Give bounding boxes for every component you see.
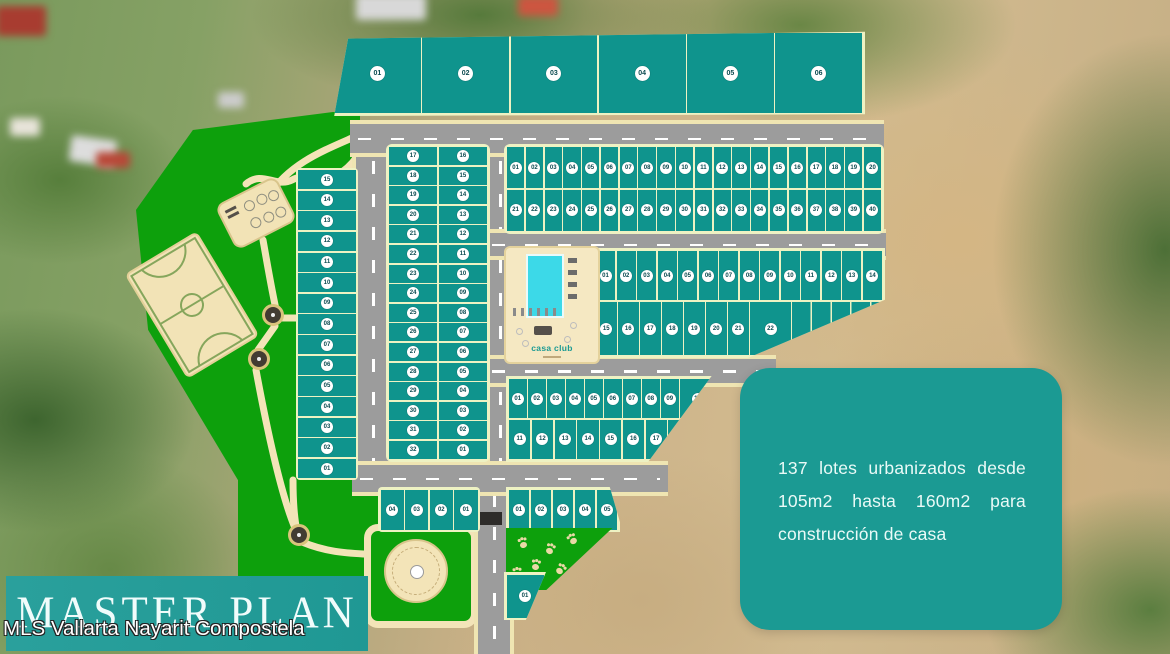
lot-number-badge: 10 <box>784 270 796 282</box>
lot-cell-03: 03 <box>553 490 574 530</box>
lot-number-badge: 10 <box>321 277 333 289</box>
lot-cell-13: 13 <box>439 206 487 224</box>
watermark-text: MLS Vallarta Nayarit Compostela <box>3 617 305 641</box>
paw-print-icon <box>545 547 554 555</box>
lot-number-badge: 02 <box>435 504 447 516</box>
lot-number-badge: 06 <box>321 359 333 371</box>
lot-cell-23: 23 <box>389 265 437 283</box>
lot-number-badge: 01 <box>513 504 525 516</box>
lot-cell-02: 02 <box>531 490 552 530</box>
cabana-icon <box>568 258 577 263</box>
lot-number-badge: 08 <box>457 307 469 319</box>
lot-cell-02: 02 <box>617 251 636 300</box>
lot-cell-04: 04 <box>381 490 404 530</box>
lot-cell-20: 20 <box>706 302 727 355</box>
lot-cell-20: 20 <box>389 206 437 224</box>
lot-cell-31: 31 <box>389 421 437 439</box>
lot-number-badge: 05 <box>588 393 600 405</box>
lot-cell-12: 12 <box>714 147 731 188</box>
lot-number-badge: 20 <box>866 162 878 174</box>
table-icon <box>248 215 263 230</box>
lot-number-badge: 11 <box>321 256 333 268</box>
lot-cell-08: 08 <box>298 314 356 333</box>
lot-number-badge: 03 <box>546 66 561 81</box>
lot-number-badge: 02 <box>528 162 540 174</box>
lot-cell-04: 04 <box>563 147 580 188</box>
lot-number-badge: 02 <box>321 442 333 454</box>
info-box-text: 137 lotes urbanizados desde 105m2 hasta … <box>778 452 1026 551</box>
lot-cell-18: 18 <box>826 147 843 188</box>
lot-cell-01: 01 <box>509 490 530 530</box>
lot-cell-01: 01 <box>439 441 487 459</box>
lot-cell-08: 08 <box>638 147 655 188</box>
club-row-bottom: 1516171819202122 <box>596 302 791 355</box>
lot-cell-13: 13 <box>298 211 356 230</box>
lot-number-badge: 04 <box>661 270 673 282</box>
lot-cell-06: 06 <box>604 379 622 418</box>
lot-cell-17: 17 <box>640 302 661 355</box>
lot-number-badge: 14 <box>321 194 333 206</box>
lot-cell-17: 17 <box>808 147 825 188</box>
table-icon <box>266 188 281 203</box>
casa-club-subtext <box>543 356 561 358</box>
lot-number-badge: 13 <box>321 215 333 227</box>
block-bottom-left: 04030201 <box>378 487 480 532</box>
block-north: 0102030405060708091011121314151617181920… <box>504 144 884 234</box>
lot-cell-01: 01 <box>454 490 477 530</box>
loungers-icon <box>513 308 559 316</box>
lot-number-badge: 18 <box>829 162 841 174</box>
lot-cell-16: 16 <box>618 302 639 355</box>
lot-cell-08: 08 <box>740 251 759 300</box>
center-right-column: 16151413121110090807060504030201 <box>439 147 487 459</box>
paw-print-icon <box>555 567 564 576</box>
lot-cell-16: 16 <box>623 420 644 459</box>
lot-cell-14: 14 <box>751 147 768 188</box>
lot-cell-19: 19 <box>845 147 862 188</box>
lot-cell-16: 16 <box>439 147 487 165</box>
lot-cell-14: 14 <box>577 420 598 459</box>
lot-number-badge: 24 <box>566 204 578 216</box>
lot-number-badge: 14 <box>582 433 594 445</box>
lot-cell-17: 17 <box>389 147 437 165</box>
lot-number-badge: 37 <box>810 204 822 216</box>
lot-number-badge: 14 <box>866 270 878 282</box>
lot-cell-02: 02 <box>422 33 509 113</box>
lot-cell-04: 04 <box>566 379 584 418</box>
palapa-icon <box>262 304 284 326</box>
lot-cell-02: 02 <box>526 147 543 188</box>
lot-number-badge: 09 <box>660 162 672 174</box>
lot-cell-02: 02 <box>430 490 453 530</box>
lot-number-badge: 07 <box>622 162 634 174</box>
bench-icon <box>227 211 239 219</box>
lot-cell-06: 06 <box>439 343 487 361</box>
lot-number-badge: 22 <box>765 323 777 335</box>
lot-cell-18: 18 <box>389 167 437 185</box>
lot-number-badge: 30 <box>679 204 691 216</box>
lot-number-badge: 16 <box>622 323 634 335</box>
lot-cell-21: 21 <box>389 225 437 243</box>
lot-number-badge: 36 <box>791 204 803 216</box>
lot-cell-24: 24 <box>563 190 580 231</box>
lot-cell-12: 12 <box>532 420 553 459</box>
lot-cell-40: 40 <box>864 190 881 231</box>
lot-cell-01: 01 <box>334 33 421 113</box>
block-bottom-right: 0102030405 <box>506 487 620 532</box>
lot-cell-30: 30 <box>389 402 437 420</box>
lot-number-badge: 29 <box>407 385 419 397</box>
lot-number-badge: 15 <box>773 162 785 174</box>
lot-number-badge: 04 <box>569 393 581 405</box>
fountain-icon <box>410 565 424 579</box>
lot-number-badge: 15 <box>600 323 612 335</box>
lot-cell-03: 03 <box>547 379 565 418</box>
lot-number-badge: 25 <box>585 204 597 216</box>
block-center: 17181920212223242526272829303132 1615141… <box>386 144 490 462</box>
lot-number-badge: 09 <box>457 287 469 299</box>
lot-number-badge: 01 <box>600 270 612 282</box>
building-roof-blur <box>356 0 426 20</box>
lot-number-badge: 23 <box>407 268 419 280</box>
table-icon <box>564 336 571 343</box>
lot-number-badge: 14 <box>754 162 766 174</box>
house-roof-blur <box>0 6 46 36</box>
lot-cell-04: 04 <box>599 33 686 113</box>
lot-number-badge: 03 <box>641 270 653 282</box>
lot-number-badge: 02 <box>457 424 469 436</box>
lot-cell-23: 23 <box>545 190 562 231</box>
lot-cell-01: 01 <box>507 147 524 188</box>
lot-number-badge: 17 <box>650 433 662 445</box>
lot-number-badge: 07 <box>626 393 638 405</box>
lot-number-badge: 12 <box>536 433 548 445</box>
lot-number-badge: 16 <box>457 150 469 162</box>
lot-number-badge: 12 <box>457 228 469 240</box>
lot-number-badge: 09 <box>321 297 333 309</box>
lot-cell-04: 04 <box>575 490 596 530</box>
lot-number-badge: 01 <box>457 444 469 456</box>
lot-cell-32: 32 <box>389 441 437 459</box>
lot-cell-05: 05 <box>582 147 599 188</box>
lot-cell-27: 27 <box>620 190 637 231</box>
lot-number-badge: 04 <box>566 162 578 174</box>
south-row-top: 01020304050607080910 <box>509 379 715 418</box>
lot-cell-26: 26 <box>601 190 618 231</box>
lot-cell-36: 36 <box>789 190 806 231</box>
lot-number-badge: 07 <box>723 270 735 282</box>
lot-cell-29: 29 <box>657 190 674 231</box>
block-west-column: 151413121110090807060504030201 <box>296 168 358 480</box>
lot-cell-03: 03 <box>298 418 356 437</box>
lot-number-badge: 22 <box>528 204 540 216</box>
lot-cell-09: 09 <box>298 294 356 313</box>
table-icon <box>570 322 577 329</box>
lot-cell-03: 03 <box>637 251 656 300</box>
lot-number-badge: 29 <box>660 204 672 216</box>
lot-number-badge: 40 <box>866 204 878 216</box>
lot-cell-21: 21 <box>507 190 524 231</box>
lot-number-badge: 02 <box>620 270 632 282</box>
center-left-column: 17181920212223242526272829303132 <box>389 147 437 459</box>
lot-cell-07: 07 <box>439 323 487 341</box>
roundabout-plaza <box>384 539 448 603</box>
lot-cell-14: 14 <box>439 186 487 204</box>
lot-number-badge: 01 <box>321 463 333 475</box>
lot-cell-04: 04 <box>658 251 677 300</box>
paw-print-icon <box>519 541 527 549</box>
lot-cell-37: 37 <box>808 190 825 231</box>
lot-cell-38: 38 <box>826 190 843 231</box>
lot-number-badge: 05 <box>723 66 738 81</box>
lot-cell-11: 11 <box>801 251 820 300</box>
palapa-icon <box>288 524 310 546</box>
lot-number-badge: 28 <box>407 366 419 378</box>
lot-cell-27: 27 <box>389 343 437 361</box>
lot-number-badge: 32 <box>407 444 419 456</box>
lot-cell-25: 25 <box>582 190 599 231</box>
lot-number-badge: 26 <box>407 326 419 338</box>
lot-cell-26: 26 <box>389 323 437 341</box>
lot-cell-13: 13 <box>555 420 576 459</box>
lot-cell-15: 15 <box>600 420 621 459</box>
lot-number-badge: 35 <box>773 204 785 216</box>
lot-number-badge: 12 <box>321 235 333 247</box>
lot-cell-25: 25 <box>389 304 437 322</box>
lot-cell-30: 30 <box>676 190 693 231</box>
lot-number-badge: 13 <box>457 209 469 221</box>
gym-icon <box>534 326 552 335</box>
lot-number-badge: 08 <box>743 270 755 282</box>
lot-cell-03: 03 <box>545 147 562 188</box>
paw-print-icon <box>569 537 578 546</box>
lot-cell-11: 11 <box>439 245 487 263</box>
lot-number-badge: 16 <box>627 433 639 445</box>
lot-number-badge: 03 <box>411 504 423 516</box>
club-row-top: 0102030405060708091011121314 <box>596 251 882 300</box>
lot-cell-33: 33 <box>732 190 749 231</box>
lot-cell-35: 35 <box>770 190 787 231</box>
lot-number-badge: 19 <box>688 323 700 335</box>
lot-number-badge: 11 <box>514 433 526 445</box>
lot-number-badge: 07 <box>321 339 333 351</box>
lot-cell-39: 39 <box>845 190 862 231</box>
lot-cell-28: 28 <box>389 363 437 381</box>
lot-number-badge: 04 <box>635 66 650 81</box>
casa-club-label: casa club <box>506 343 598 353</box>
lot-number-badge: 06 <box>811 66 826 81</box>
lot-cell-15: 15 <box>770 147 787 188</box>
lot-cell-24: 24 <box>389 284 437 302</box>
lot-cell-05: 05 <box>585 379 603 418</box>
lot-cell-06: 06 <box>601 147 618 188</box>
lot-number-badge: 04 <box>321 401 333 413</box>
lot-cell-22: 22 <box>389 245 437 263</box>
lot-number-badge: 04 <box>386 504 398 516</box>
lot-number-badge: 32 <box>716 204 728 216</box>
lot-number-badge: 07 <box>457 326 469 338</box>
lot-cell-22: 22 <box>526 190 543 231</box>
lot-number-badge: 18 <box>407 170 419 182</box>
table-icon <box>273 205 288 220</box>
lot-cell-05: 05 <box>687 33 774 113</box>
house-roof-blur <box>518 0 558 16</box>
lot-cell-12: 12 <box>439 225 487 243</box>
lot-cell-10: 10 <box>676 147 693 188</box>
lot-cell-31: 31 <box>695 190 712 231</box>
lot-cell-09: 09 <box>657 147 674 188</box>
cabana-icon <box>568 282 577 287</box>
lot-number-badge: 28 <box>641 204 653 216</box>
lot-cell-07: 07 <box>298 335 356 354</box>
lot-number-badge: 26 <box>604 204 616 216</box>
lot-cell-08: 08 <box>439 304 487 322</box>
lot-number-badge: 13 <box>735 162 747 174</box>
lot-cell-07: 07 <box>719 251 738 300</box>
lot-number-badge: 05 <box>457 366 469 378</box>
lot-cell-13: 13 <box>732 147 749 188</box>
lot-number-badge: 33 <box>735 204 747 216</box>
lot-cell-32: 32 <box>714 190 731 231</box>
lot-cell-15: 15 <box>298 170 356 189</box>
lot-cell-02: 02 <box>528 379 546 418</box>
roundabout-park <box>364 524 478 628</box>
lot-number-badge: 06 <box>702 270 714 282</box>
lot-number-badge: 27 <box>407 346 419 358</box>
lot-cell-11: 11 <box>298 253 356 272</box>
north-row-top: 0102030405060708091011121314151617181920 <box>507 147 881 188</box>
lot-number-badge: 03 <box>547 162 559 174</box>
lot-number-badge: 17 <box>644 323 656 335</box>
lot-number-badge: 08 <box>645 393 657 405</box>
lot-number-badge: 21 <box>510 204 522 216</box>
lot-number-badge: 08 <box>321 318 333 330</box>
lot-number-badge: 03 <box>557 504 569 516</box>
lot-number-badge: 22 <box>407 248 419 260</box>
lot-number-badge: 12 <box>716 162 728 174</box>
lot-cell-04: 04 <box>298 397 356 416</box>
lot-cell-11: 11 <box>695 147 712 188</box>
lot-number-badge: 01 <box>512 393 524 405</box>
lot-number-badge: 15 <box>321 174 333 186</box>
lot-cell-05: 05 <box>439 363 487 381</box>
lot-number-badge: 12 <box>825 270 837 282</box>
lot-cell-03: 03 <box>511 33 598 113</box>
lot-cell-05: 05 <box>678 251 697 300</box>
lot-cell-06: 06 <box>699 251 718 300</box>
lot-number-badge: 31 <box>407 424 419 436</box>
lot-number-badge: 38 <box>829 204 841 216</box>
north-row-bottom: 2122232425262728293031323334353637383940 <box>507 190 881 231</box>
lot-number-badge: 16 <box>791 162 803 174</box>
lot-cell-09: 09 <box>439 284 487 302</box>
lot-cell-14: 14 <box>863 251 882 300</box>
lot-number-badge: 21 <box>407 228 419 240</box>
lot-number-badge: 09 <box>664 393 676 405</box>
lot-number-badge: 05 <box>682 270 694 282</box>
lot-cell-03: 03 <box>439 402 487 420</box>
lot-cell-28: 28 <box>638 190 655 231</box>
lot-cell-15: 15 <box>439 167 487 185</box>
lot-number-badge: 18 <box>666 323 678 335</box>
lot-number-badge: 13 <box>559 433 571 445</box>
lot-cell-07: 07 <box>620 147 637 188</box>
lot-number-badge: 11 <box>457 248 469 260</box>
lot-number-badge: 15 <box>605 433 617 445</box>
lot-number-badge: 02 <box>535 504 547 516</box>
lot-number-badge: 17 <box>810 162 822 174</box>
lot-number-badge: 23 <box>547 204 559 216</box>
lot-cell-10: 10 <box>298 273 356 292</box>
cabana-icon <box>568 294 577 299</box>
lot-number-badge: 01 <box>370 66 385 81</box>
lot-cell-09: 09 <box>661 379 679 418</box>
lot-number-badge: 11 <box>697 162 709 174</box>
palapa-icon <box>248 348 270 370</box>
lot-number-badge: 27 <box>622 204 634 216</box>
lot-cell-06: 06 <box>775 33 862 113</box>
lot-cell-18: 18 <box>662 302 683 355</box>
lot-number-badge: 19 <box>848 162 860 174</box>
lot-number-badge: 10 <box>679 162 691 174</box>
lot-cell-05: 05 <box>298 376 356 395</box>
lot-cell-10: 10 <box>439 265 487 283</box>
master-plan-canvas: 010203040506 151413121110090807060504030… <box>0 0 1170 654</box>
lot-number-badge: 09 <box>764 270 776 282</box>
lot-cell-01: 01 <box>298 459 356 478</box>
lot-cell-14: 14 <box>298 191 356 210</box>
lot-number-badge: 04 <box>457 385 469 397</box>
lot-number-badge: 30 <box>407 405 419 417</box>
house-roof-blur <box>218 92 244 108</box>
lot-number-badge: 05 <box>321 380 333 392</box>
lot-number-badge: 34 <box>754 204 766 216</box>
casa-club: casa club <box>504 246 600 364</box>
lot-number-badge: 06 <box>607 393 619 405</box>
lot-number-badge: 06 <box>457 346 469 358</box>
paw-print-icon <box>532 563 540 570</box>
lot-number-badge: 03 <box>550 393 562 405</box>
lot-number-badge: 17 <box>407 150 419 162</box>
lot-number-badge: 20 <box>710 323 722 335</box>
info-box: 137 lotes urbanizados desde 105m2 hasta … <box>740 368 1062 630</box>
lot-number-badge: 10 <box>457 268 469 280</box>
lot-cell-19: 19 <box>389 186 437 204</box>
lot-number-badge: 25 <box>407 307 419 319</box>
lot-number-badge: 24 <box>407 287 419 299</box>
house-roof-blur <box>96 152 130 168</box>
lot-cell-13: 13 <box>842 251 861 300</box>
table-icon <box>242 198 257 213</box>
lot-cell-12: 12 <box>822 251 841 300</box>
lot-number-badge: 02 <box>458 66 473 81</box>
lot-cell-34: 34 <box>751 190 768 231</box>
lot-cell-02: 02 <box>439 421 487 439</box>
lot-number-badge: 01 <box>519 590 531 602</box>
lot-number-badge: 20 <box>407 209 419 221</box>
lot-number-badge: 39 <box>848 204 860 216</box>
lot-number-badge: 21 <box>732 323 744 335</box>
lot-cell-11: 11 <box>509 420 530 459</box>
lot-number-badge: 19 <box>407 189 419 201</box>
lot-number-badge: 08 <box>641 162 653 174</box>
lot-cell-16: 16 <box>789 147 806 188</box>
crosswalk <box>478 512 502 525</box>
lot-number-badge: 05 <box>585 162 597 174</box>
table-icon <box>516 328 523 335</box>
lot-number-badge: 06 <box>604 162 616 174</box>
lot-cell-07: 07 <box>623 379 641 418</box>
